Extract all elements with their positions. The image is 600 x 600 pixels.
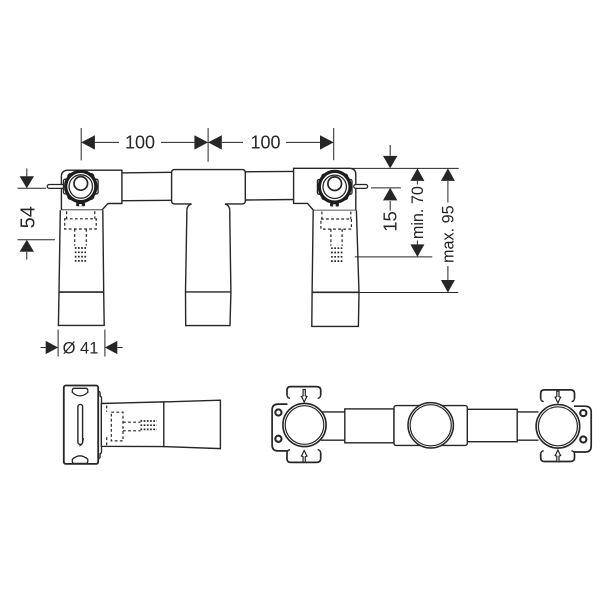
svg-text:15: 15 bbox=[380, 211, 401, 232]
svg-text:max. 95: max. 95 bbox=[440, 205, 458, 263]
svg-text:100: 100 bbox=[125, 133, 155, 153]
svg-text:Ø 41: Ø 41 bbox=[63, 339, 99, 357]
svg-text:100: 100 bbox=[250, 133, 280, 153]
svg-text:54: 54 bbox=[18, 206, 40, 228]
svg-text:min. 70: min. 70 bbox=[409, 186, 427, 239]
